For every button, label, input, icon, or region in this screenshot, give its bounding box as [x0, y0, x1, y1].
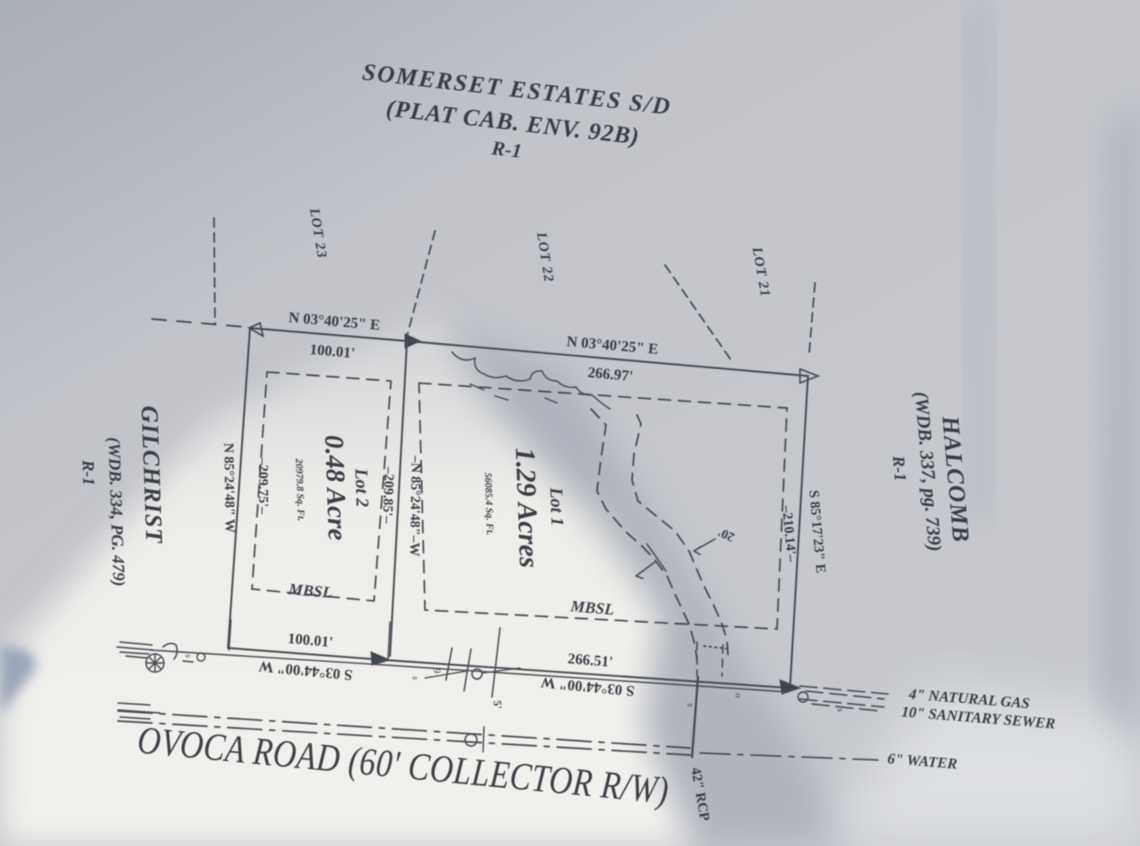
svg-text:R-1: R-1 — [889, 454, 910, 482]
svg-text:R-1: R-1 — [79, 459, 99, 486]
svg-text:–209.85'–: –209.85'– — [379, 466, 396, 525]
svg-text:20979.8 Sq. Ft.: 20979.8 Sq. Ft. — [293, 457, 306, 521]
svg-text:0.48 Acre: 0.48 Acre — [319, 434, 353, 540]
svg-text:N 85°24'48" W: N 85°24'48" W — [220, 443, 237, 533]
svg-text:Lot 1: Lot 1 — [546, 486, 567, 526]
svg-text:–N 85°24'48"–W: –N 85°24'48"–W — [406, 455, 423, 557]
svg-text:Lot 2: Lot 2 — [351, 467, 372, 507]
svg-text:R-1: R-1 — [490, 137, 523, 162]
svg-text:5': 5' — [491, 700, 504, 710]
svg-text:56085.4 Sq. Ft.: 56085.4 Sq. Ft. — [482, 472, 495, 535]
svg-text:9: 9 — [431, 668, 442, 674]
svg-text:1.29 Acres: 1.29 Acres — [509, 447, 544, 568]
svg-text:GILCHRIST: GILCHRIST — [136, 405, 167, 545]
